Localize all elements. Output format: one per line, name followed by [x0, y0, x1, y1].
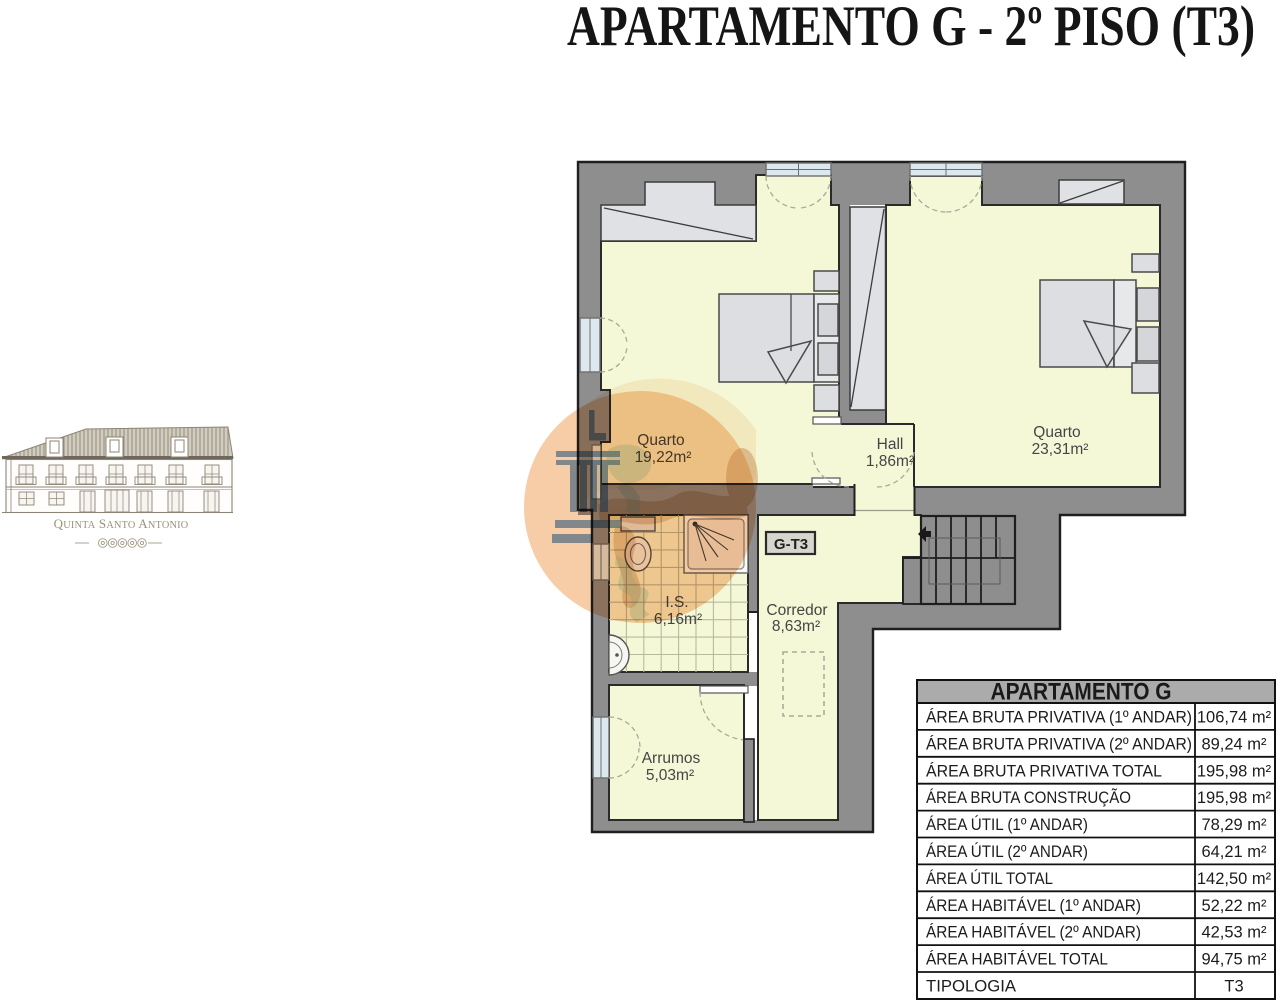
svg-text:42,53 m²: 42,53 m²: [1201, 924, 1267, 942]
svg-text:ÁREA BRUTA PRIVATIVA (2º ANDAR: ÁREA BRUTA PRIVATIVA (2º ANDAR): [926, 734, 1192, 753]
svg-text:G-T3: G-T3: [774, 536, 808, 553]
svg-text:Arrumos: Arrumos: [642, 750, 701, 767]
svg-text:ÁREA BRUTA PRIVATIVA (1º ANDAR: ÁREA BRUTA PRIVATIVA (1º ANDAR): [926, 708, 1192, 727]
svg-text:ÁREA ÚTIL (1º ANDAR): ÁREA ÚTIL (1º ANDAR): [926, 815, 1088, 834]
svg-text:T3: T3: [1224, 978, 1243, 996]
svg-text:ÁREA ÚTIL (2º ANDAR): ÁREA ÚTIL (2º ANDAR): [926, 842, 1088, 861]
svg-text:89,24 m²: 89,24 m²: [1201, 735, 1267, 753]
svg-text:142,50 m²: 142,50 m²: [1197, 870, 1272, 888]
svg-text:ÁREA BRUTA CONSTRUÇÃO: ÁREA BRUTA CONSTRUÇÃO: [926, 788, 1131, 807]
svg-text:ÁREA HABITÁVEL (2º ANDAR): ÁREA HABITÁVEL (2º ANDAR): [926, 923, 1141, 942]
svg-text:Quarto: Quarto: [1033, 424, 1080, 441]
svg-text:23,31m²: 23,31m²: [1032, 441, 1089, 458]
svg-text:64,21 m²: 64,21 m²: [1201, 843, 1267, 861]
svg-text:5,03m²: 5,03m²: [646, 767, 694, 784]
svg-text:195,98 m²: 195,98 m²: [1197, 789, 1272, 807]
svg-text:106,74 m²: 106,74 m²: [1197, 709, 1272, 727]
svg-text:Corredor: Corredor: [766, 602, 827, 619]
svg-text:94,75 m²: 94,75 m²: [1201, 951, 1267, 969]
svg-text:APARTAMENTO G: APARTAMENTO G: [991, 679, 1172, 706]
svg-text:ÁREA HABITÁVEL TOTAL: ÁREA HABITÁVEL TOTAL: [926, 950, 1108, 969]
svg-text:1,86m²: 1,86m²: [866, 453, 914, 470]
svg-text:Hall: Hall: [877, 436, 904, 453]
svg-text:195,98 m²: 195,98 m²: [1197, 762, 1272, 780]
svg-text:52,22 m²: 52,22 m²: [1201, 897, 1267, 915]
svg-text:TIPOLOGIA: TIPOLOGIA: [926, 977, 1017, 996]
svg-text:APARTAMENTO G - 2º PISO (T3): APARTAMENTO G - 2º PISO (T3): [567, 0, 1255, 58]
svg-text:ÁREA HABITÁVEL (1º ANDAR): ÁREA HABITÁVEL (1º ANDAR): [926, 896, 1141, 915]
svg-text:ÁREA BRUTA PRIVATIVA TOTAL: ÁREA BRUTA PRIVATIVA TOTAL: [926, 761, 1162, 780]
svg-text:ÁREA ÚTIL TOTAL: ÁREA ÚTIL TOTAL: [926, 869, 1053, 888]
svg-text:8,63m²: 8,63m²: [772, 618, 820, 635]
svg-text:78,29 m²: 78,29 m²: [1201, 816, 1267, 834]
